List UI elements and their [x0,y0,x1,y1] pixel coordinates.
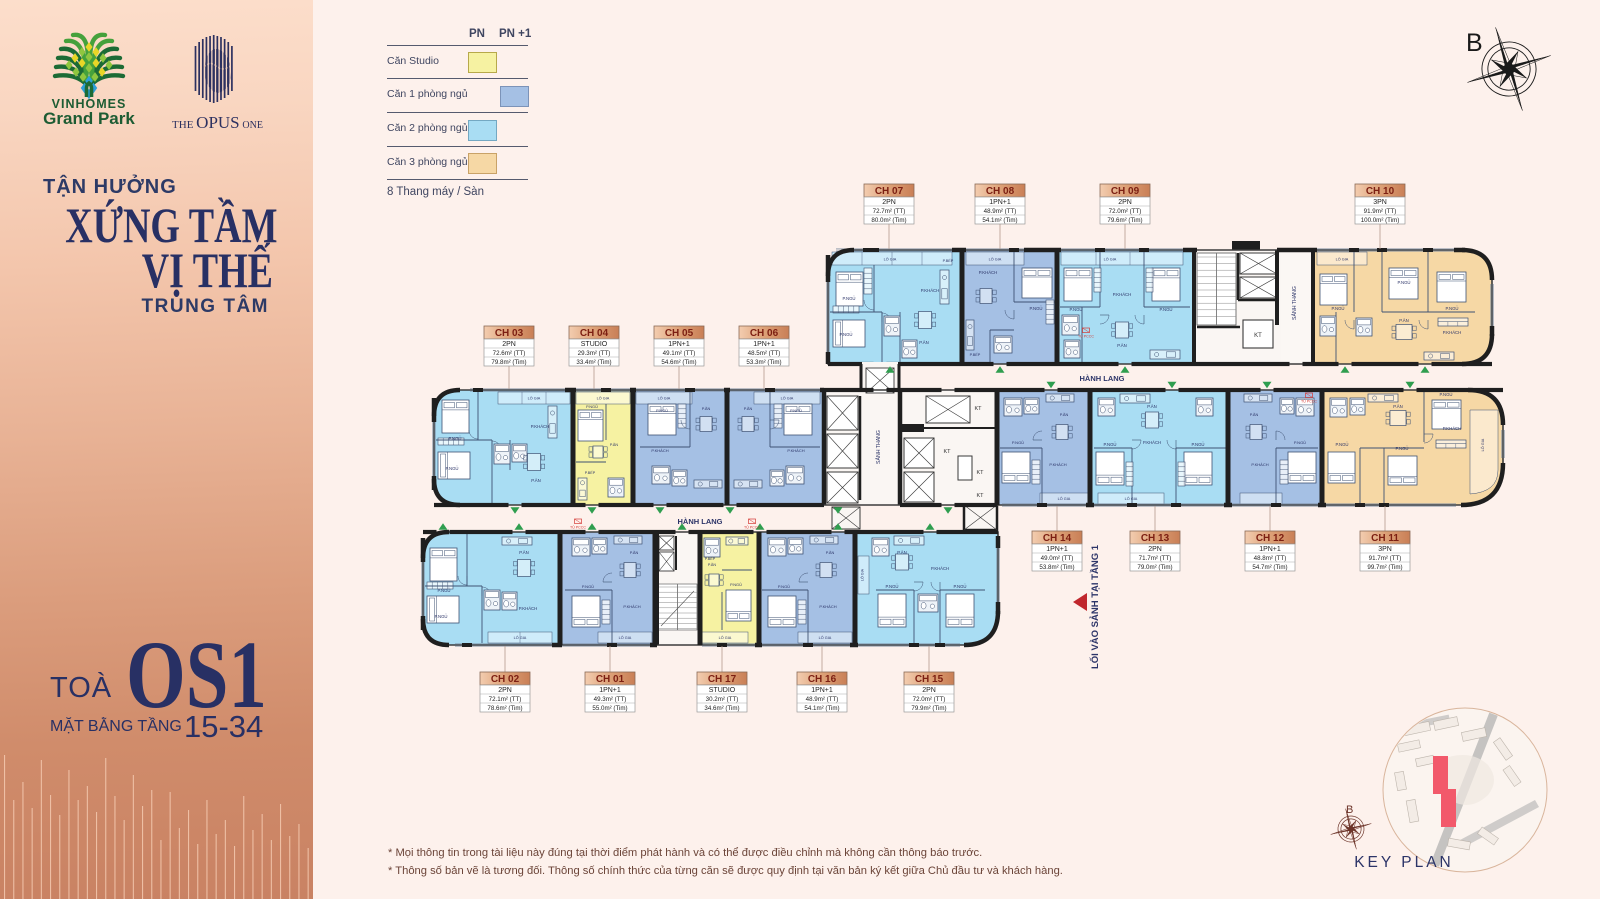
svg-text:LÔ GIA: LÔ GIA [597,396,610,401]
svg-text:100.0m² (Tim): 100.0m² (Tim) [1361,217,1400,224]
svg-text:P.NGỦ: P.NGỦ [448,436,461,441]
svg-text:P.ĂN: P.ĂN [1250,412,1259,417]
svg-text:99.7m² (Tim): 99.7m² (Tim) [1367,564,1402,571]
svg-text:CH 09: CH 09 [1111,186,1140,197]
svg-text:P.KHÁCH: P.KHÁCH [1049,462,1066,467]
svg-text:48.8m² (TT): 48.8m² (TT) [1254,555,1287,562]
svg-text:P.NGỦ: P.NGỦ [1294,440,1306,445]
svg-text:CH 08: CH 08 [986,186,1015,197]
svg-text:CH 01: CH 01 [596,674,625,685]
svg-text:P.NGỦ: P.NGỦ [1103,442,1116,447]
svg-text:HÀNH LANG: HÀNH LANG [1080,374,1125,383]
svg-text:P.NGỦ: P.NGỦ [1069,307,1082,312]
svg-text:P.KHÁCH: P.KHÁCH [787,448,804,453]
svg-text:78.6m² (Tim): 78.6m² (Tim) [487,705,522,712]
svg-text:LÔ GIA: LÔ GIA [1125,496,1138,501]
svg-text:LÔ GIA: LÔ GIA [719,635,732,640]
svg-text:1PN+1: 1PN+1 [599,687,621,694]
svg-text:P.KHÁCH: P.KHÁCH [651,448,668,453]
svg-text:P.NGỦ: P.NGỦ [1439,392,1452,397]
svg-text:KT: KT [976,493,984,499]
svg-text:3PN: 3PN [1373,199,1387,206]
svg-text:P.ĂN: P.ĂN [708,563,716,567]
svg-text:KT: KT [943,449,951,455]
svg-text:P.BẾP: P.BẾP [705,556,716,561]
svg-text:54.7m² (Tim): 54.7m² (Tim) [1252,564,1287,571]
svg-text:54.1m² (Tim): 54.1m² (Tim) [982,217,1017,224]
svg-text:CH 11: CH 11 [1371,533,1399,544]
svg-text:72.0m² (TT): 72.0m² (TT) [913,696,946,703]
svg-text:1PN+1: 1PN+1 [811,687,833,694]
svg-text:49.3m² (TT): 49.3m² (TT) [594,696,627,703]
svg-text:P.NGỦ: P.NGỦ [437,588,450,593]
svg-text:CH 16: CH 16 [808,674,837,685]
svg-text:CH 13: CH 13 [1141,533,1170,544]
svg-text:P.BẾP: P.BẾP [970,352,981,357]
svg-text:1PN+1: 1PN+1 [1046,546,1068,553]
svg-text:P.ĂN: P.ĂN [1060,412,1069,417]
svg-text:P.KHÁCH: P.KHÁCH [1443,330,1462,335]
svg-text:72.6m² (TT): 72.6m² (TT) [493,350,526,357]
svg-text:LÔ GIA: LÔ GIA [528,396,541,401]
svg-text:CH 15: CH 15 [915,674,944,685]
svg-text:P.NGỦ: P.NGỦ [586,404,598,409]
svg-text:P.BẾP: P.BẾP [585,470,596,475]
svg-text:P.NGỦ: P.NGỦ [778,584,790,589]
svg-text:P.ĂN: P.ĂN [1117,343,1126,348]
svg-text:P.KHÁCH: P.KHÁCH [819,604,836,609]
svg-text:LÔ GIA: LÔ GIA [1058,496,1071,501]
svg-text:P.ĂN: P.ĂN [919,340,928,345]
svg-text:B: B [1466,29,1483,57]
svg-text:P.NGỦ: P.NGỦ [1395,446,1408,451]
svg-text:P.KHÁCH: P.KHÁCH [1251,462,1268,467]
svg-text:80.0m² (Tim): 80.0m² (Tim) [871,217,906,224]
svg-text:P.KHÁCH: P.KHÁCH [921,288,940,293]
svg-text:CH 03: CH 03 [495,328,524,339]
svg-text:P.NGỦ: P.NGỦ [953,584,966,589]
svg-text:2PN: 2PN [1118,199,1132,206]
svg-text:P.ĂN: P.ĂN [1399,318,1408,323]
svg-text:72.7m² (TT): 72.7m² (TT) [873,208,906,215]
svg-text:CH 04: CH 04 [580,328,609,339]
svg-text:P.NGỦ: P.NGỦ [730,582,742,587]
svg-text:P.BẾP: P.BẾP [943,258,954,263]
svg-text:P.NGỦ: P.NGỦ [1397,280,1410,285]
svg-text:P.ĂN: P.ĂN [630,550,639,555]
svg-text:P.NGỦ: P.NGỦ [1191,442,1204,447]
svg-text:LÔ GIA: LÔ GIA [619,635,632,640]
svg-text:79.0m² (Tim): 79.0m² (Tim) [1137,564,1172,571]
svg-text:P.NGỦ: P.NGỦ [656,408,668,413]
svg-text:TỦ PCCC: TỦ PCCC [1078,334,1094,339]
svg-text:LÔ GIA: LÔ GIA [1480,438,1485,451]
svg-text:P.NGỦ: P.NGỦ [842,296,855,301]
svg-text:P.NGỦ: P.NGỦ [1012,440,1024,445]
svg-text:TỦ PCCC: TỦ PCCC [1301,399,1317,404]
svg-text:79.9m² (Tim): 79.9m² (Tim) [911,705,946,712]
svg-text:LÔ GIA: LÔ GIA [1104,257,1117,262]
svg-text:29.3m² (TT): 29.3m² (TT) [578,350,611,357]
svg-text:72.1m² (TT): 72.1m² (TT) [489,696,522,703]
svg-text:P.ĂN: P.ĂN [531,478,540,483]
svg-text:KT: KT [1254,333,1262,339]
svg-text:P.KHÁCH: P.KHÁCH [519,606,538,611]
svg-text:CH 17: CH 17 [708,674,737,685]
svg-text:B: B [1346,804,1353,816]
svg-text:49.1m² (TT): 49.1m² (TT) [663,350,696,357]
svg-text:P.ĂN: P.ĂN [826,550,835,555]
svg-text:P.ĂN: P.ĂN [702,406,711,411]
svg-text:53.3m² (Tim): 53.3m² (Tim) [746,359,781,366]
svg-text:CH 12: CH 12 [1256,533,1285,544]
svg-text:2PN: 2PN [498,687,512,694]
svg-text:2PN: 2PN [882,199,896,206]
svg-text:P.NGỦ: P.NGỦ [445,466,458,471]
svg-text:HÀNH LANG: HÀNH LANG [678,517,723,526]
svg-text:54.1m² (Tim): 54.1m² (Tim) [804,705,839,712]
svg-text:LÔ GIA: LÔ GIA [514,635,527,640]
svg-text:P.KHÁCH: P.KHÁCH [931,566,949,571]
svg-text:2PN: 2PN [502,341,516,348]
svg-text:1PN+1: 1PN+1 [1259,546,1281,553]
svg-text:CH 06: CH 06 [750,328,779,339]
svg-text:SẢNH THANG: SẢNH THANG [1291,286,1298,320]
svg-text:LÔ GIA: LÔ GIA [1336,257,1349,262]
svg-text:30.2m² (TT): 30.2m² (TT) [706,696,739,703]
svg-text:P.NGỦ: P.NGỦ [790,408,802,413]
svg-text:48.9m² (TT): 48.9m² (TT) [806,696,839,703]
svg-text:71.7m² (TT): 71.7m² (TT) [1139,555,1172,562]
svg-text:2PN: 2PN [1148,546,1162,553]
svg-text:P.NGỦ: P.NGỦ [1159,307,1172,312]
svg-text:P.NGỦ: P.NGỦ [885,584,898,589]
svg-text:P.NGỦ: P.NGỦ [1331,306,1344,311]
svg-text:LÔ GIA: LÔ GIA [781,396,794,401]
svg-text:P.ĂN: P.ĂN [897,550,906,555]
svg-text:LỐI VÀO SẢNH TẠI TẦNG 1: LỐI VÀO SẢNH TẠI TẦNG 1 [1089,544,1101,669]
svg-text:55.0m² (Tim): 55.0m² (Tim) [592,705,627,712]
svg-text:P.KHÁCH: P.KHÁCH [623,604,640,609]
svg-text:CH 07: CH 07 [875,186,904,197]
svg-text:STUDIO: STUDIO [709,687,736,694]
svg-text:P.ĂN: P.ĂN [1393,404,1402,409]
svg-text:LÔ GIA: LÔ GIA [860,568,865,581]
svg-text:KEY PLAN: KEY PLAN [1354,854,1454,871]
svg-text:72.0m² (TT): 72.0m² (TT) [1109,208,1142,215]
svg-text:P.ĂN: P.ĂN [744,406,753,411]
svg-text:LÔ GIA: LÔ GIA [819,635,832,640]
svg-text:34.6m² (Tim): 34.6m² (Tim) [704,705,739,712]
svg-text:1PN+1: 1PN+1 [753,341,775,348]
svg-text:2PN: 2PN [922,687,936,694]
svg-text:1PN+1: 1PN+1 [989,199,1011,206]
svg-text:P.NGỦ: P.NGỦ [1029,306,1042,311]
svg-text:TỦ PCCC: TỦ PCCC [744,525,760,530]
svg-text:1PN+1: 1PN+1 [668,341,690,348]
svg-text:P.NGỦ: P.NGỦ [839,332,852,337]
svg-text:P.KHÁCH: P.KHÁCH [979,270,998,275]
svg-text:LÔ GIA: LÔ GIA [884,257,897,262]
svg-text:P.KHÁCH: P.KHÁCH [1443,426,1462,431]
svg-text:CH 10: CH 10 [1366,186,1395,197]
svg-text:P.KHÁCH: P.KHÁCH [531,424,550,429]
svg-text:P.NGỦ: P.NGỦ [1335,442,1348,447]
svg-text:48.5m² (TT): 48.5m² (TT) [748,350,781,357]
svg-text:49.0m² (TT): 49.0m² (TT) [1041,555,1074,562]
svg-text:91.7m² (TT): 91.7m² (TT) [1369,555,1402,562]
svg-text:LÔ GIA: LÔ GIA [989,257,1002,262]
svg-text:CH 02: CH 02 [491,674,520,685]
svg-text:KT: KT [976,470,984,476]
svg-text:79.6m² (Tim): 79.6m² (Tim) [1107,217,1142,224]
svg-text:P.KHÁCH: P.KHÁCH [1113,292,1132,297]
svg-text:P.ĂN: P.ĂN [519,550,528,555]
svg-text:P.NGỦ: P.NGỦ [434,614,447,619]
svg-text:79.8m² (Tim): 79.8m² (Tim) [491,359,526,366]
svg-text:P.ĂN: P.ĂN [610,443,618,447]
svg-text:KT: KT [974,406,982,412]
svg-text:P.NGỦ: P.NGỦ [582,584,594,589]
svg-text:CH 05: CH 05 [665,328,694,339]
svg-text:3PN: 3PN [1378,546,1392,553]
svg-text:91.9m² (TT): 91.9m² (TT) [1364,208,1397,215]
svg-text:54.6m² (Tim): 54.6m² (Tim) [661,359,696,366]
svg-text:CH 14: CH 14 [1043,533,1072,544]
svg-text:P.NGỦ: P.NGỦ [1445,306,1458,311]
svg-text:P.KHÁCH: P.KHÁCH [1143,440,1161,445]
svg-text:STUDIO: STUDIO [581,341,608,348]
svg-text:48.9m² (TT): 48.9m² (TT) [984,208,1017,215]
svg-text:P.ĂN: P.ĂN [1147,404,1156,409]
svg-text:33.4m² (Tim): 33.4m² (Tim) [576,359,611,366]
svg-text:SẢNH THANG: SẢNH THANG [875,430,882,464]
svg-text:LÔ GIA: LÔ GIA [658,396,671,401]
svg-text:TỦ PCCC: TỦ PCCC [570,525,586,530]
svg-text:53.8m² (Tim): 53.8m² (Tim) [1039,564,1074,571]
